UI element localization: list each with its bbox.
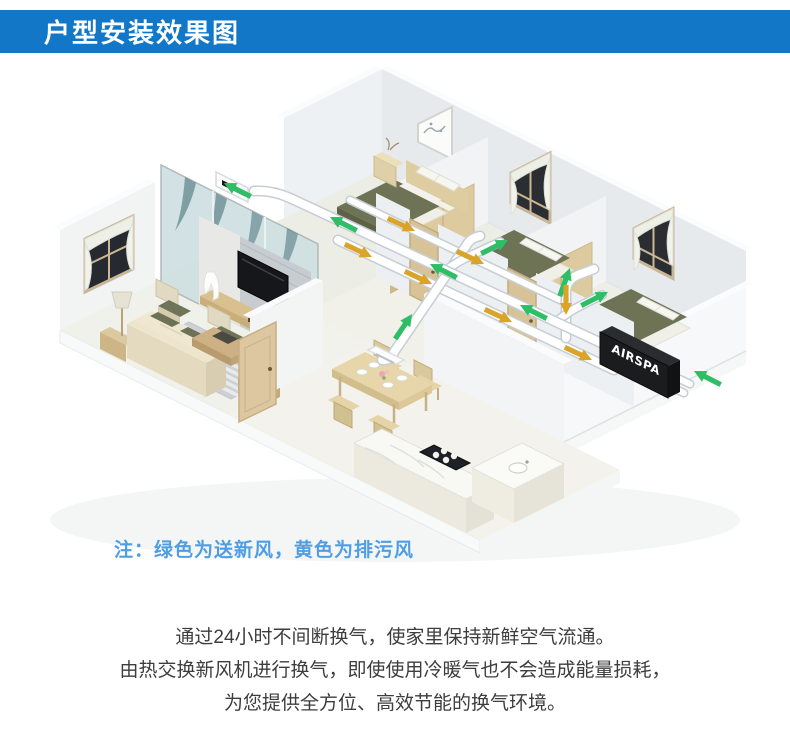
description-text: 通过24小时不间断换气，使家里保持新鲜空气流通。 由热交换新风机进行换气，即使使… <box>0 621 790 720</box>
description-line-3: 为您提供全方位、高效节能的换气环境。 <box>0 687 790 720</box>
description-line-2: 由热交换新风机进行换气，即使使用冷暖气也不会造成能量损耗， <box>0 654 790 687</box>
legend-note: 注：绿色为送新风，黄色为排污风 <box>114 535 414 562</box>
description-line-1: 通过24小时不间断换气，使家里保持新鲜空气流通。 <box>0 621 790 654</box>
page: 户型安装效果图 <box>0 0 790 756</box>
entrance-door <box>239 322 276 422</box>
